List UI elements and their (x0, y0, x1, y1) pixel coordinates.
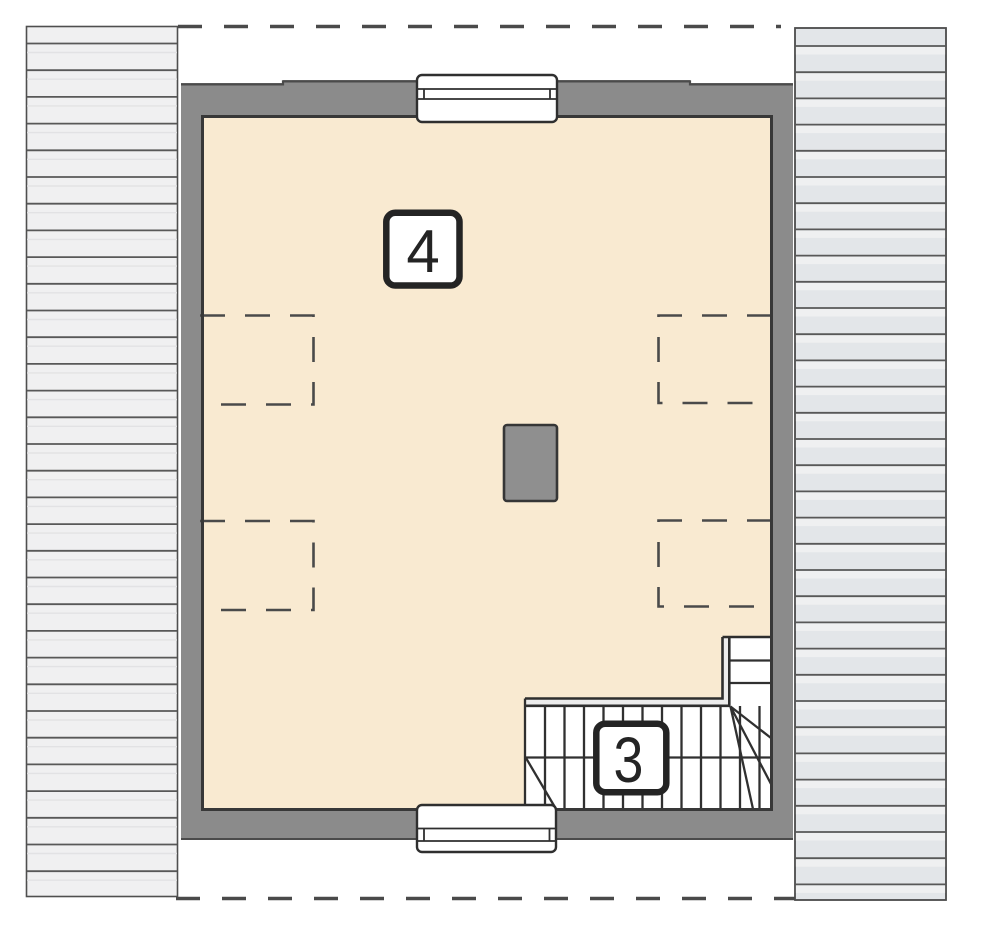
svg-text:4: 4 (406, 218, 439, 285)
svg-text:3: 3 (614, 724, 644, 797)
